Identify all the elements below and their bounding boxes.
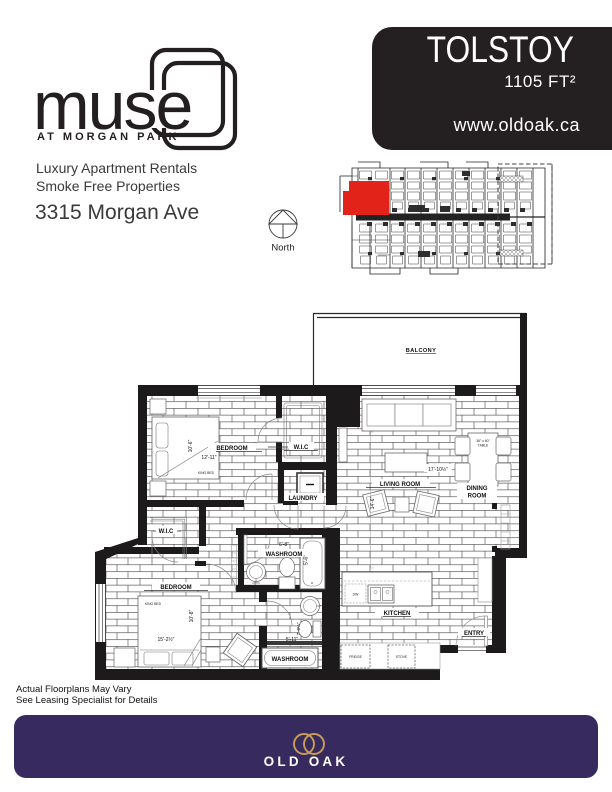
svg-text:12'-11": 12'-11" [201, 455, 216, 461]
svg-text:BEDROOM: BEDROOM [216, 446, 247, 452]
svg-text:KITCHEN: KITCHEN [384, 611, 411, 617]
svg-text:FRIDGE: FRIDGE [349, 655, 363, 659]
svg-text:17'-10½": 17'-10½" [428, 466, 448, 473]
svg-text:LIVING ROOM: LIVING ROOM [380, 482, 420, 488]
svg-text:North: North [271, 243, 294, 254]
svg-text:BEDROOM: BEDROOM [160, 585, 191, 591]
svg-text:5'-11": 5'-11" [286, 637, 299, 643]
svg-text:W.I.C: W.I.C [159, 529, 174, 535]
svg-text:LAUNDRY: LAUNDRY [288, 496, 317, 502]
svg-text:36" x 60": 36" x 60" [476, 439, 490, 443]
svg-text:10'-8": 10'-8" [189, 609, 195, 622]
svg-text:W.I.C: W.I.C [294, 445, 309, 451]
svg-text:7'-6¼": 7'-6¼" [296, 622, 301, 635]
svg-text:KING BED: KING BED [145, 602, 162, 606]
svg-text:14'-6": 14'-6" [370, 496, 376, 509]
svg-text:ENTRY: ENTRY [464, 631, 484, 637]
svg-text:6'-8": 6'-8" [279, 542, 289, 548]
svg-text:ROOM: ROOM [468, 494, 487, 500]
svg-text:STOVE: STOVE [396, 655, 408, 659]
svg-text:TABLE: TABLE [478, 444, 489, 448]
svg-text:DINING: DINING [467, 486, 488, 492]
svg-text:5'-6": 5'-6" [304, 555, 310, 565]
svg-text:10'-6": 10'-6" [188, 439, 194, 452]
svg-text:DW: DW [353, 593, 359, 597]
svg-text:15'-2½": 15'-2½" [158, 636, 175, 643]
svg-text:WASHROOM: WASHROOM [272, 657, 309, 663]
svg-text:WASHROOM: WASHROOM [266, 552, 303, 558]
svg-text:KING BED: KING BED [198, 471, 215, 475]
svg-text:BALCONY: BALCONY [406, 348, 436, 354]
